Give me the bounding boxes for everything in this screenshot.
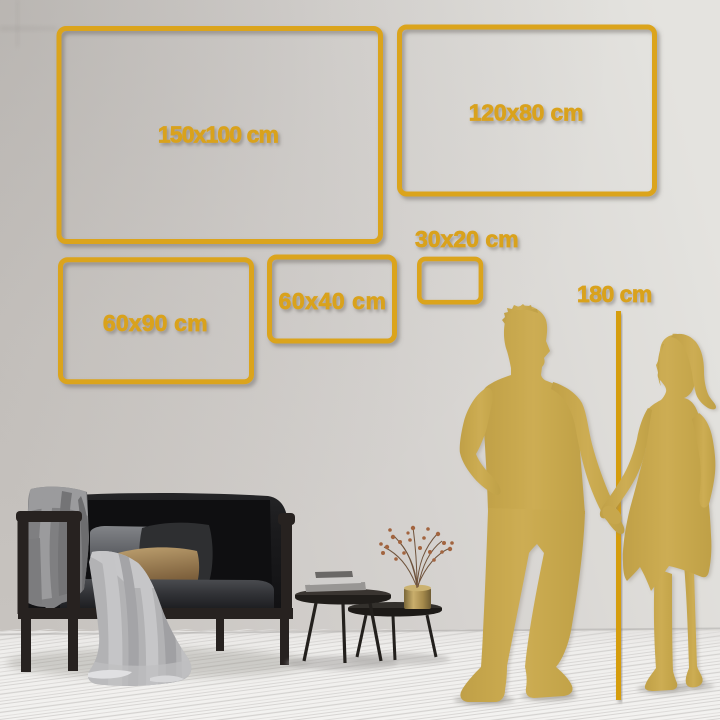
svg-text:30x20 cm: 30x20 cm	[415, 226, 519, 252]
svg-text:150x100 cm: 150x100 cm	[158, 121, 279, 147]
svg-text:60x90 cm: 60x90 cm	[103, 310, 208, 336]
svg-text:120x80 cm: 120x80 cm	[469, 99, 584, 125]
svg-text:180 cm: 180 cm	[577, 281, 652, 307]
svg-text:60x40 cm: 60x40 cm	[279, 288, 387, 314]
